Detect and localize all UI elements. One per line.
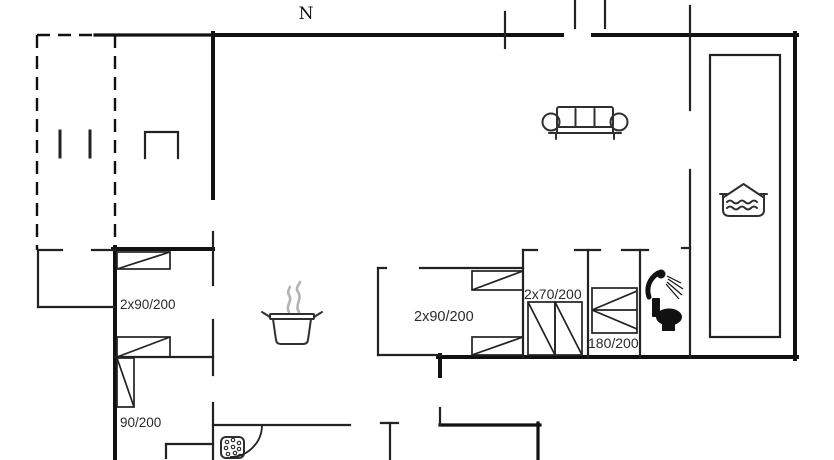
carport-post-icon bbox=[60, 131, 90, 157]
bed-symbol bbox=[472, 271, 523, 290]
steam-icon bbox=[288, 282, 300, 312]
bed-size-label: 2x90/200 bbox=[414, 309, 474, 325]
carport-outline bbox=[37, 35, 115, 250]
bed-symbol bbox=[117, 337, 170, 357]
interior-walls bbox=[38, 1, 690, 460]
bed-size-label: 90/200 bbox=[120, 415, 161, 430]
spa-pool-outline bbox=[710, 55, 780, 337]
bed-size-label: 180/200 bbox=[588, 335, 639, 351]
sofa-icon bbox=[543, 107, 628, 139]
bed-symbol bbox=[555, 302, 582, 355]
bed-symbol bbox=[117, 252, 170, 269]
bed-symbol bbox=[528, 302, 555, 355]
cooking-pot-icon bbox=[262, 312, 322, 344]
spa-bath-icon bbox=[720, 184, 767, 216]
carport-shed-symbol bbox=[145, 132, 178, 158]
bed-size-label: 2x70/200 bbox=[524, 286, 582, 302]
bed-symbol bbox=[472, 337, 523, 355]
floor-plan: N 2x90/200 90/200 2x90/200 2x70/200 180/… bbox=[0, 0, 834, 460]
bed-symbol bbox=[117, 358, 134, 407]
toilet-icon bbox=[652, 298, 682, 331]
shower-icon bbox=[648, 270, 683, 300]
bed-size-label: 2x90/200 bbox=[120, 297, 176, 312]
north-label: N bbox=[299, 4, 314, 24]
exterior-walls bbox=[113, 33, 797, 460]
exterior-walls-annex bbox=[440, 423, 540, 460]
floor-plan-canvas: N 2x90/200 90/200 2x90/200 2x70/200 180/… bbox=[0, 0, 834, 460]
bed-symbol bbox=[592, 288, 637, 333]
